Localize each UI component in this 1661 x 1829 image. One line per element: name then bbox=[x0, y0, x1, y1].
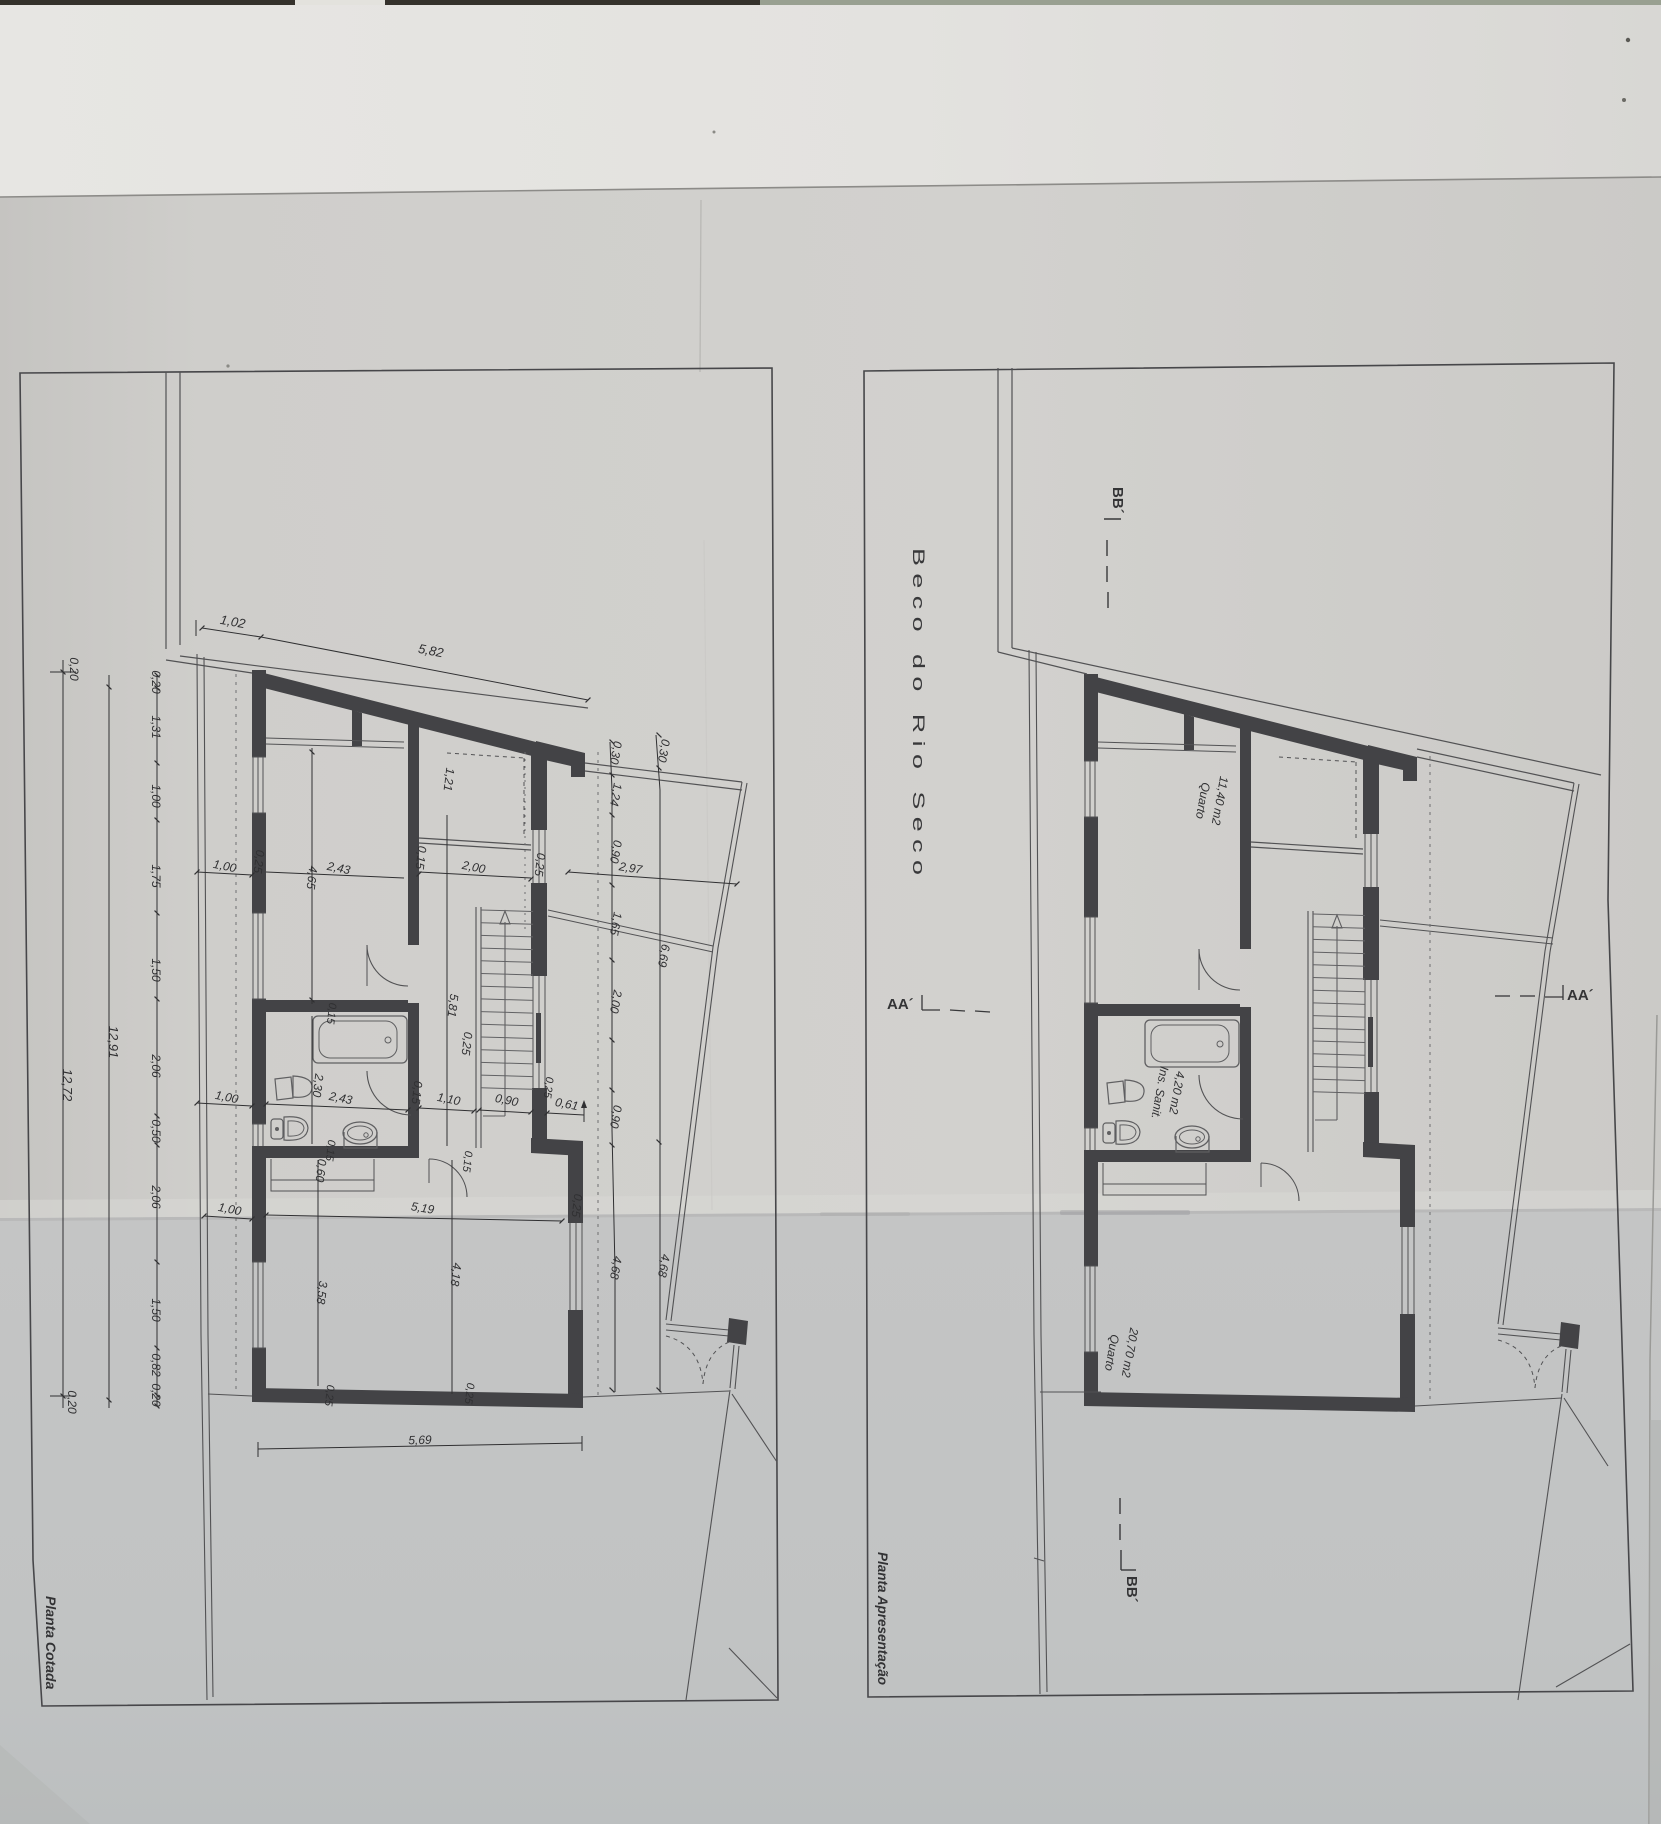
svg-text:0,20: 0,20 bbox=[67, 657, 81, 681]
svg-text:0,25: 0,25 bbox=[251, 849, 268, 874]
svg-text:2,06: 2,06 bbox=[149, 1184, 163, 1209]
svg-text:0,20: 0,20 bbox=[149, 670, 163, 694]
svg-text:5,69: 5,69 bbox=[408, 1433, 432, 1447]
svg-text:0,25: 0,25 bbox=[459, 1031, 476, 1056]
svg-text:0,25: 0,25 bbox=[569, 1193, 586, 1218]
svg-text:3,58: 3,58 bbox=[314, 1280, 331, 1305]
svg-text:Planta Cotada: Planta Cotada bbox=[43, 1596, 59, 1690]
svg-text:0,20: 0,20 bbox=[149, 1383, 163, 1407]
svg-text:12,91: 12,91 bbox=[106, 1026, 121, 1059]
svg-text:0,50: 0,50 bbox=[149, 1119, 163, 1143]
svg-text:AA´: AA´ bbox=[1567, 987, 1594, 1004]
svg-text:1,75: 1,75 bbox=[149, 864, 163, 888]
svg-text:0,15: 0,15 bbox=[409, 1080, 426, 1105]
svg-text:AA´: AA´ bbox=[887, 996, 914, 1013]
svg-text:0,20: 0,20 bbox=[65, 1390, 79, 1414]
svg-text:12,72: 12,72 bbox=[60, 1069, 75, 1102]
svg-text:2,06: 2,06 bbox=[149, 1053, 163, 1078]
svg-text:1,50: 1,50 bbox=[149, 958, 163, 982]
svg-text:1,21: 1,21 bbox=[441, 767, 458, 792]
svg-text:0,15: 0,15 bbox=[413, 845, 430, 870]
svg-text:4,18: 4,18 bbox=[448, 1262, 465, 1287]
svg-text:B e c o d o R i o S e c: B e c o d o R i o S e c o bbox=[909, 548, 928, 875]
svg-text:1,00: 1,00 bbox=[149, 784, 163, 808]
svg-text:0,25: 0,25 bbox=[532, 852, 549, 877]
svg-text:BB´: BB´ bbox=[1109, 487, 1126, 514]
svg-text:1,31: 1,31 bbox=[149, 715, 163, 738]
svg-text:BB´: BB´ bbox=[1123, 1576, 1140, 1603]
svg-text:0,82: 0,82 bbox=[149, 1353, 163, 1377]
svg-text:1,50: 1,50 bbox=[149, 1298, 163, 1322]
svg-text:Planta Apresentação: Planta Apresentação bbox=[875, 1552, 890, 1685]
svg-text:0,60: 0,60 bbox=[313, 1158, 330, 1183]
